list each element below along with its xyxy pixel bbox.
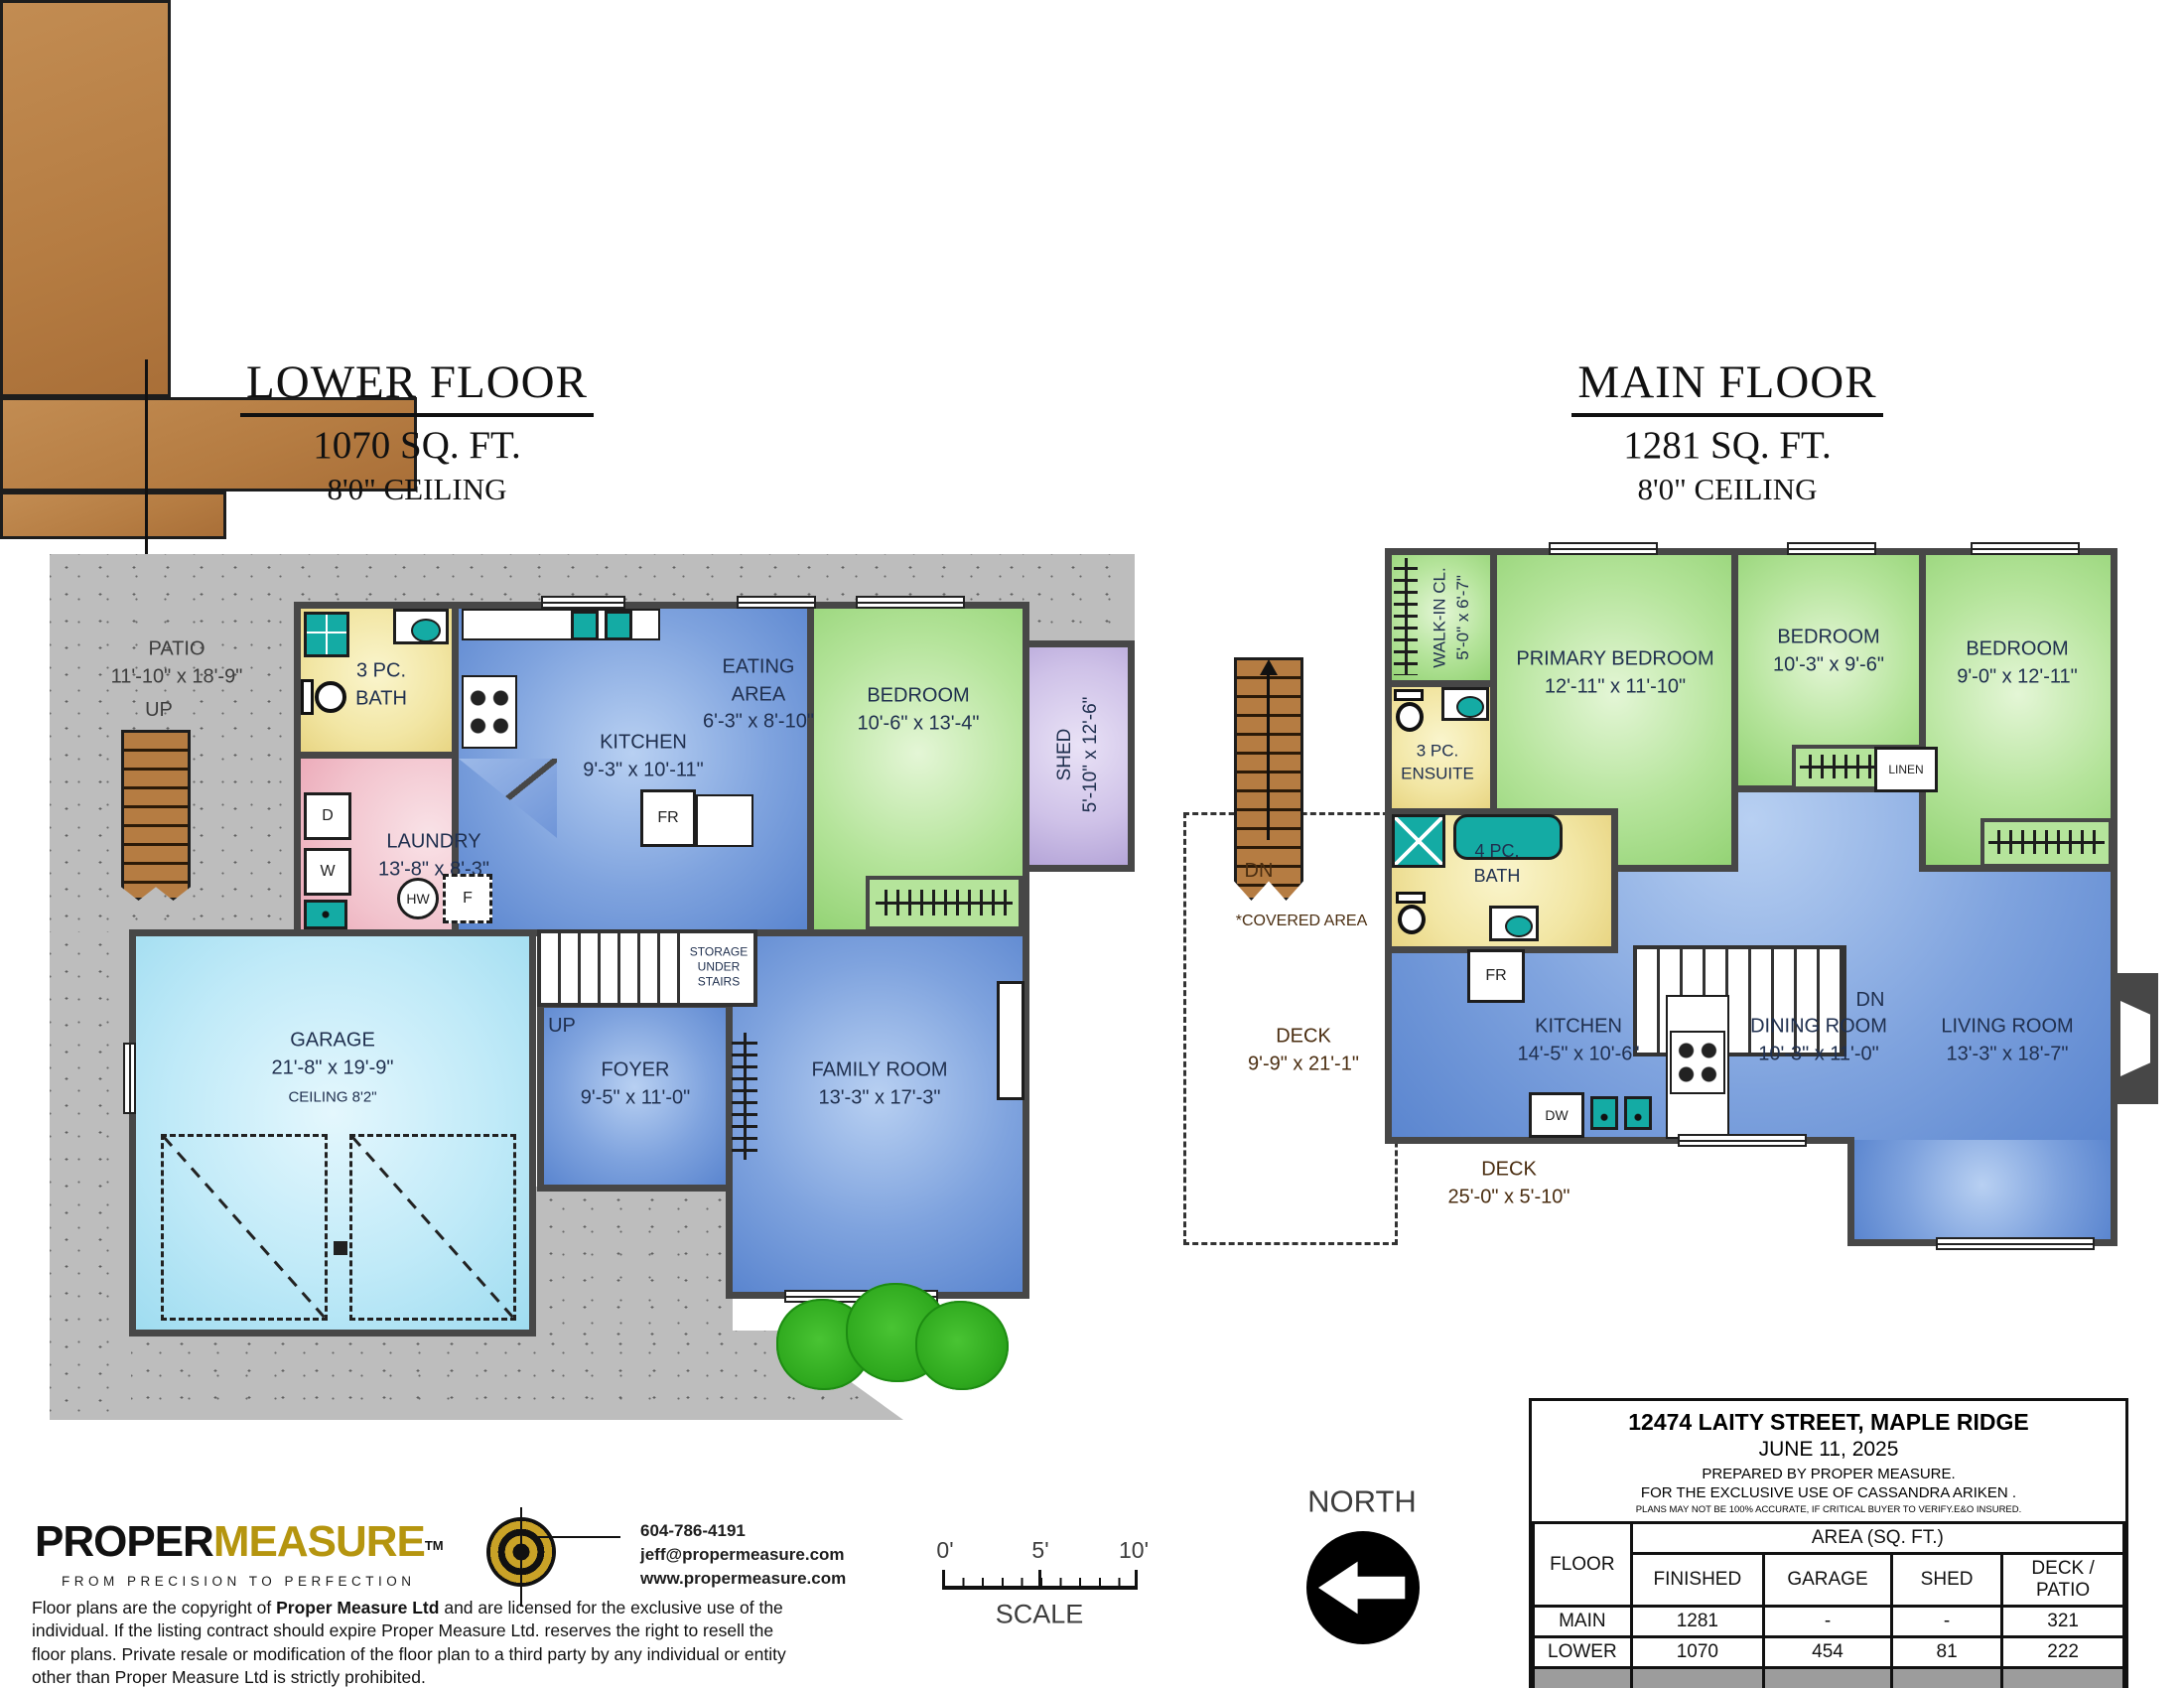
area-header: AREA (SQ. FT.): [1631, 1523, 2123, 1554]
table-row-spacer: [1534, 1668, 2124, 1688]
porch-concrete: [534, 1187, 733, 1336]
ensuite-toilet-bowl: [1396, 702, 1424, 732]
window: [856, 596, 965, 609]
north-label: NORTH: [1307, 1481, 1417, 1524]
bath-sink-counter: [393, 609, 449, 644]
cell-shed: -: [1891, 1607, 2001, 1637]
step-wall: [1847, 1137, 1854, 1246]
col-finished: FINISHED: [1631, 1554, 1763, 1607]
foyer-closet-rail: [732, 1033, 757, 1160]
garage-post: [334, 1241, 347, 1255]
foyer-label: FOYER 9'-5" x 11'-0": [581, 1056, 690, 1111]
window: [1936, 1237, 2095, 1250]
garage-label: GARAGE 21'-8" x 19'-9": [271, 1027, 393, 1081]
linen-label: LINEN: [1888, 763, 1923, 776]
contact-block: 604-786-4191 jeff@propermeasure.com www.…: [640, 1519, 846, 1591]
laundry-sink: [304, 900, 347, 929]
patio-concrete-shed-top: [1023, 554, 1135, 645]
floor-plan-sheet: LOWER FLOOR 1070 SQ. FT. 8'0" CEILING MA…: [0, 0, 2184, 1688]
shower-corner: [304, 612, 349, 657]
bottom-deck-label: DECK 25'-0" x 5'-10": [1447, 1156, 1570, 1210]
storage-under-stairs-label: STORAGE UNDER STAIRS: [690, 945, 748, 990]
main-floor-title-block: MAIN FLOOR 1281 SQ. FT. 8'0" CEILING: [1469, 355, 1985, 507]
cell-shed: 81: [1891, 1637, 2001, 1668]
washer-label: W: [320, 863, 335, 881]
walkin-rail: [1394, 558, 1418, 675]
plan-date: JUNE 11, 2025: [1538, 1438, 2119, 1462]
area-table: FLOOR AREA (SQ. FT.) FINISHED GARAGE SHE…: [1532, 1521, 2125, 1688]
lower-fridge-label: FR: [657, 809, 678, 827]
shed-label: SHED 5'-10" x 12'-6": [1052, 697, 1104, 813]
logo-part2: MEASURE: [213, 1517, 425, 1566]
crosshair-horizontal: [536, 1536, 620, 1538]
logo-tagline: FROM PRECISION TO PERFECTION: [62, 1574, 416, 1589]
garage-door-left-diagonal: [164, 1137, 325, 1318]
table-row: FLOOR AREA (SQ. FT.): [1534, 1523, 2124, 1554]
dryer: D: [304, 792, 351, 840]
spacer-cell: [1631, 1668, 1763, 1688]
primary-bedroom-label: PRIMARY BEDROOM 12'-11" x 11'-10": [1516, 645, 1713, 700]
foyer-up-label: UP: [548, 1013, 576, 1041]
col-garage: GARAGE: [1764, 1554, 1892, 1607]
garage-door-right-diagonal: [352, 1137, 513, 1318]
family-room-label: FAMILY ROOM 13'-3" x 17'-3": [811, 1056, 947, 1111]
table-row-main: MAIN 1281 - - 321: [1534, 1607, 2124, 1637]
copyright-bold: Proper Measure Ltd: [276, 1598, 439, 1618]
dryer-label: D: [322, 807, 334, 825]
main-fireplace-inner: [2120, 1001, 2150, 1076]
linen-closet: LINEN: [1874, 747, 1938, 792]
col-shed: SHED: [1891, 1554, 2001, 1607]
window: [1549, 542, 1658, 555]
spacer-cell: [1891, 1668, 2001, 1688]
bath4-sink: [1505, 915, 1533, 937]
bath-toilet-tank: [1396, 892, 1426, 904]
garage-ceiling-label: CEILING 8'2": [288, 1088, 376, 1109]
floor-column-header: FLOOR: [1534, 1523, 1632, 1607]
window: [1971, 542, 2080, 555]
bath-4pc-label: 4 PC. BATH: [1474, 839, 1521, 889]
living-room-extension: [1847, 1140, 2117, 1246]
prepared-by: PREPARED BY PROPER MEASURE.: [1538, 1466, 2119, 1482]
patio-stairs: [121, 730, 191, 901]
info-table: 12474 LAITY STREET, MAPLE RIDGE JUNE 11,…: [1529, 1398, 2128, 1688]
info-table-header: 12474 LAITY STREET, MAPLE RIDGE JUNE 11,…: [1532, 1401, 2125, 1521]
stove: [462, 675, 517, 749]
main-sink-1: [1590, 1096, 1618, 1130]
main-sink-2: [1624, 1096, 1652, 1130]
fridge-counter: [696, 794, 753, 847]
cell-floor: MAIN: [1534, 1607, 1632, 1637]
cell-floor: LOWER: [1534, 1637, 1632, 1668]
scale-0: 0': [936, 1535, 953, 1567]
dining-room-label: DINING ROOM 10'-3" x 11'-0": [1750, 1013, 1887, 1067]
cell-deck: 321: [2002, 1607, 2124, 1637]
closet-rail: [876, 890, 1013, 915]
cell-garage: 454: [1764, 1637, 1892, 1668]
bedroom2-label: BEDROOM 10'-3" x 9'-6": [1773, 624, 1884, 678]
spacer-cell: [1764, 1668, 1892, 1688]
lower-bedroom-label: BEDROOM 10'-6" x 13'-4": [857, 682, 979, 737]
shower-stall: [1392, 814, 1445, 868]
family-fireplace: [997, 981, 1024, 1100]
spacer-cell: [2002, 1668, 2124, 1688]
main-floor-area: 1281 SQ. FT.: [1469, 423, 1985, 468]
crosshair-vertical: [520, 1507, 522, 1607]
ensuite-label: 3 PC. ENSUITE: [1401, 740, 1474, 786]
main-fridge: FR: [1467, 949, 1525, 1003]
property-address: 12474 LAITY STREET, MAPLE RIDGE: [1538, 1409, 2119, 1436]
disclaimer: PLANS MAY NOT BE 100% ACCURATE, IF CRITI…: [1538, 1504, 2119, 1515]
ensuite-toilet-tank: [1394, 689, 1424, 701]
lower-fridge: FR: [640, 789, 696, 847]
lower-kitchen-label: KITCHEN 9'-3" x 10'-11": [583, 729, 704, 783]
patio-concrete-left-strip: [50, 931, 131, 1420]
scale-10: 10': [1119, 1535, 1149, 1567]
window: [737, 596, 816, 609]
scale-label: SCALE: [996, 1596, 1084, 1632]
living-room-label: LIVING ROOM 13'-3" x 18'-7": [1941, 1013, 2073, 1067]
main-kitchen-label: KITCHEN 14'-5" x 10'-6": [1517, 1013, 1639, 1067]
exclusive-use: FOR THE EXCLUSIVE USE OF CASSANDRA ARIKE…: [1538, 1484, 2119, 1501]
family-room: [726, 929, 1029, 1299]
window: [1678, 1134, 1807, 1147]
window: [123, 1043, 136, 1114]
bush: [915, 1301, 1009, 1390]
table-row-lower: LOWER 1070 454 81 222: [1534, 1637, 2124, 1668]
main-floor-title: MAIN FLOOR: [1571, 355, 1882, 417]
toilet-tank: [301, 679, 314, 715]
bedroom3-closet-rail: [1988, 830, 2105, 854]
main-stove: [1670, 1031, 1725, 1094]
covered-area-label: *COVERED AREA: [1236, 911, 1367, 932]
copyright-text: Floor plans are the copyright of Proper …: [32, 1597, 801, 1688]
contact-phone: 604-786-4191: [640, 1519, 846, 1543]
garage-door-left: [161, 1134, 328, 1321]
main-fridge-label: FR: [1485, 967, 1506, 985]
lower-floor-title-block: LOWER FLOOR 1070 SQ. FT. 8'0" CEILING: [159, 355, 675, 507]
furnace: F: [443, 874, 492, 923]
col-deck-patio: DECK / PATIO: [2002, 1554, 2124, 1607]
stairs-up-arrow: [1260, 659, 1278, 675]
patio-up-label: UP: [145, 697, 173, 725]
window: [1787, 542, 1876, 555]
logo-tm: TM: [425, 1538, 444, 1553]
ensuite-sink-counter: [1441, 687, 1489, 721]
dishwasher-label: DW: [1545, 1107, 1568, 1123]
bath-toilet-bowl: [1398, 905, 1426, 934]
lower-floor-ceiling: 8'0" CEILING: [159, 472, 675, 507]
lower-floor-title: LOWER FLOOR: [240, 355, 594, 417]
window: [541, 596, 625, 609]
spacer-cell: [1534, 1668, 1632, 1688]
hot-water-tank: HW: [397, 878, 439, 919]
ensuite-sink: [1456, 696, 1484, 718]
bath-3pc-label: 3 PC. BATH: [355, 657, 407, 712]
walkin-label: WALK-IN CL. 5'-0" x 6'-7": [1429, 567, 1475, 667]
washer: W: [304, 848, 351, 896]
cell-finished: 1281: [1631, 1607, 1763, 1637]
patio-label: PATIO 11'-10" x 18'-9": [111, 635, 243, 690]
toilet-bowl: [315, 681, 346, 713]
cell-deck: 222: [2002, 1637, 2124, 1668]
main-fireplace: [2113, 973, 2158, 1104]
exterior-dn-label: DN: [1245, 858, 1274, 886]
furnace-label: F: [463, 890, 473, 908]
dishwasher: DW: [1529, 1092, 1584, 1138]
bath-sink: [411, 619, 441, 642]
lower-floor-area: 1070 SQ. FT.: [159, 423, 675, 468]
kitchen-sink-2: [605, 611, 632, 640]
side-deck: [0, 0, 171, 397]
property-line: [145, 359, 148, 558]
side-deck-label: DECK 9'-9" x 21'-1": [1248, 1023, 1359, 1077]
eating-area-label: EATING AREA 6'-3" x 8'-10": [703, 654, 814, 737]
cell-garage: -: [1764, 1607, 1892, 1637]
contact-web: www.propermeasure.com: [640, 1567, 846, 1591]
stairs-direction-line: [1267, 671, 1270, 840]
scale-5: 5': [1031, 1535, 1048, 1567]
cell-finished: 1070: [1631, 1637, 1763, 1668]
garage-door-right: [349, 1134, 516, 1321]
proper-measure-logo: PROPERMEASURETM: [35, 1517, 444, 1567]
scale-baseline: [942, 1586, 1138, 1590]
interior-dn-label: DN: [1856, 987, 1885, 1015]
bath4-sink-counter: [1489, 906, 1539, 941]
contact-email: jeff@propermeasure.com: [640, 1543, 846, 1567]
hot-water-label: HW: [406, 891, 429, 907]
main-floor-ceiling: 8'0" CEILING: [1469, 472, 1985, 507]
bedroom3-label: BEDROOM 9'-0" x 12'-11": [1957, 635, 2078, 690]
copyright-pre: Floor plans are the copyright of: [32, 1598, 276, 1618]
kitchen-sink-1: [571, 611, 599, 640]
logo-part1: PROPER: [35, 1517, 213, 1566]
